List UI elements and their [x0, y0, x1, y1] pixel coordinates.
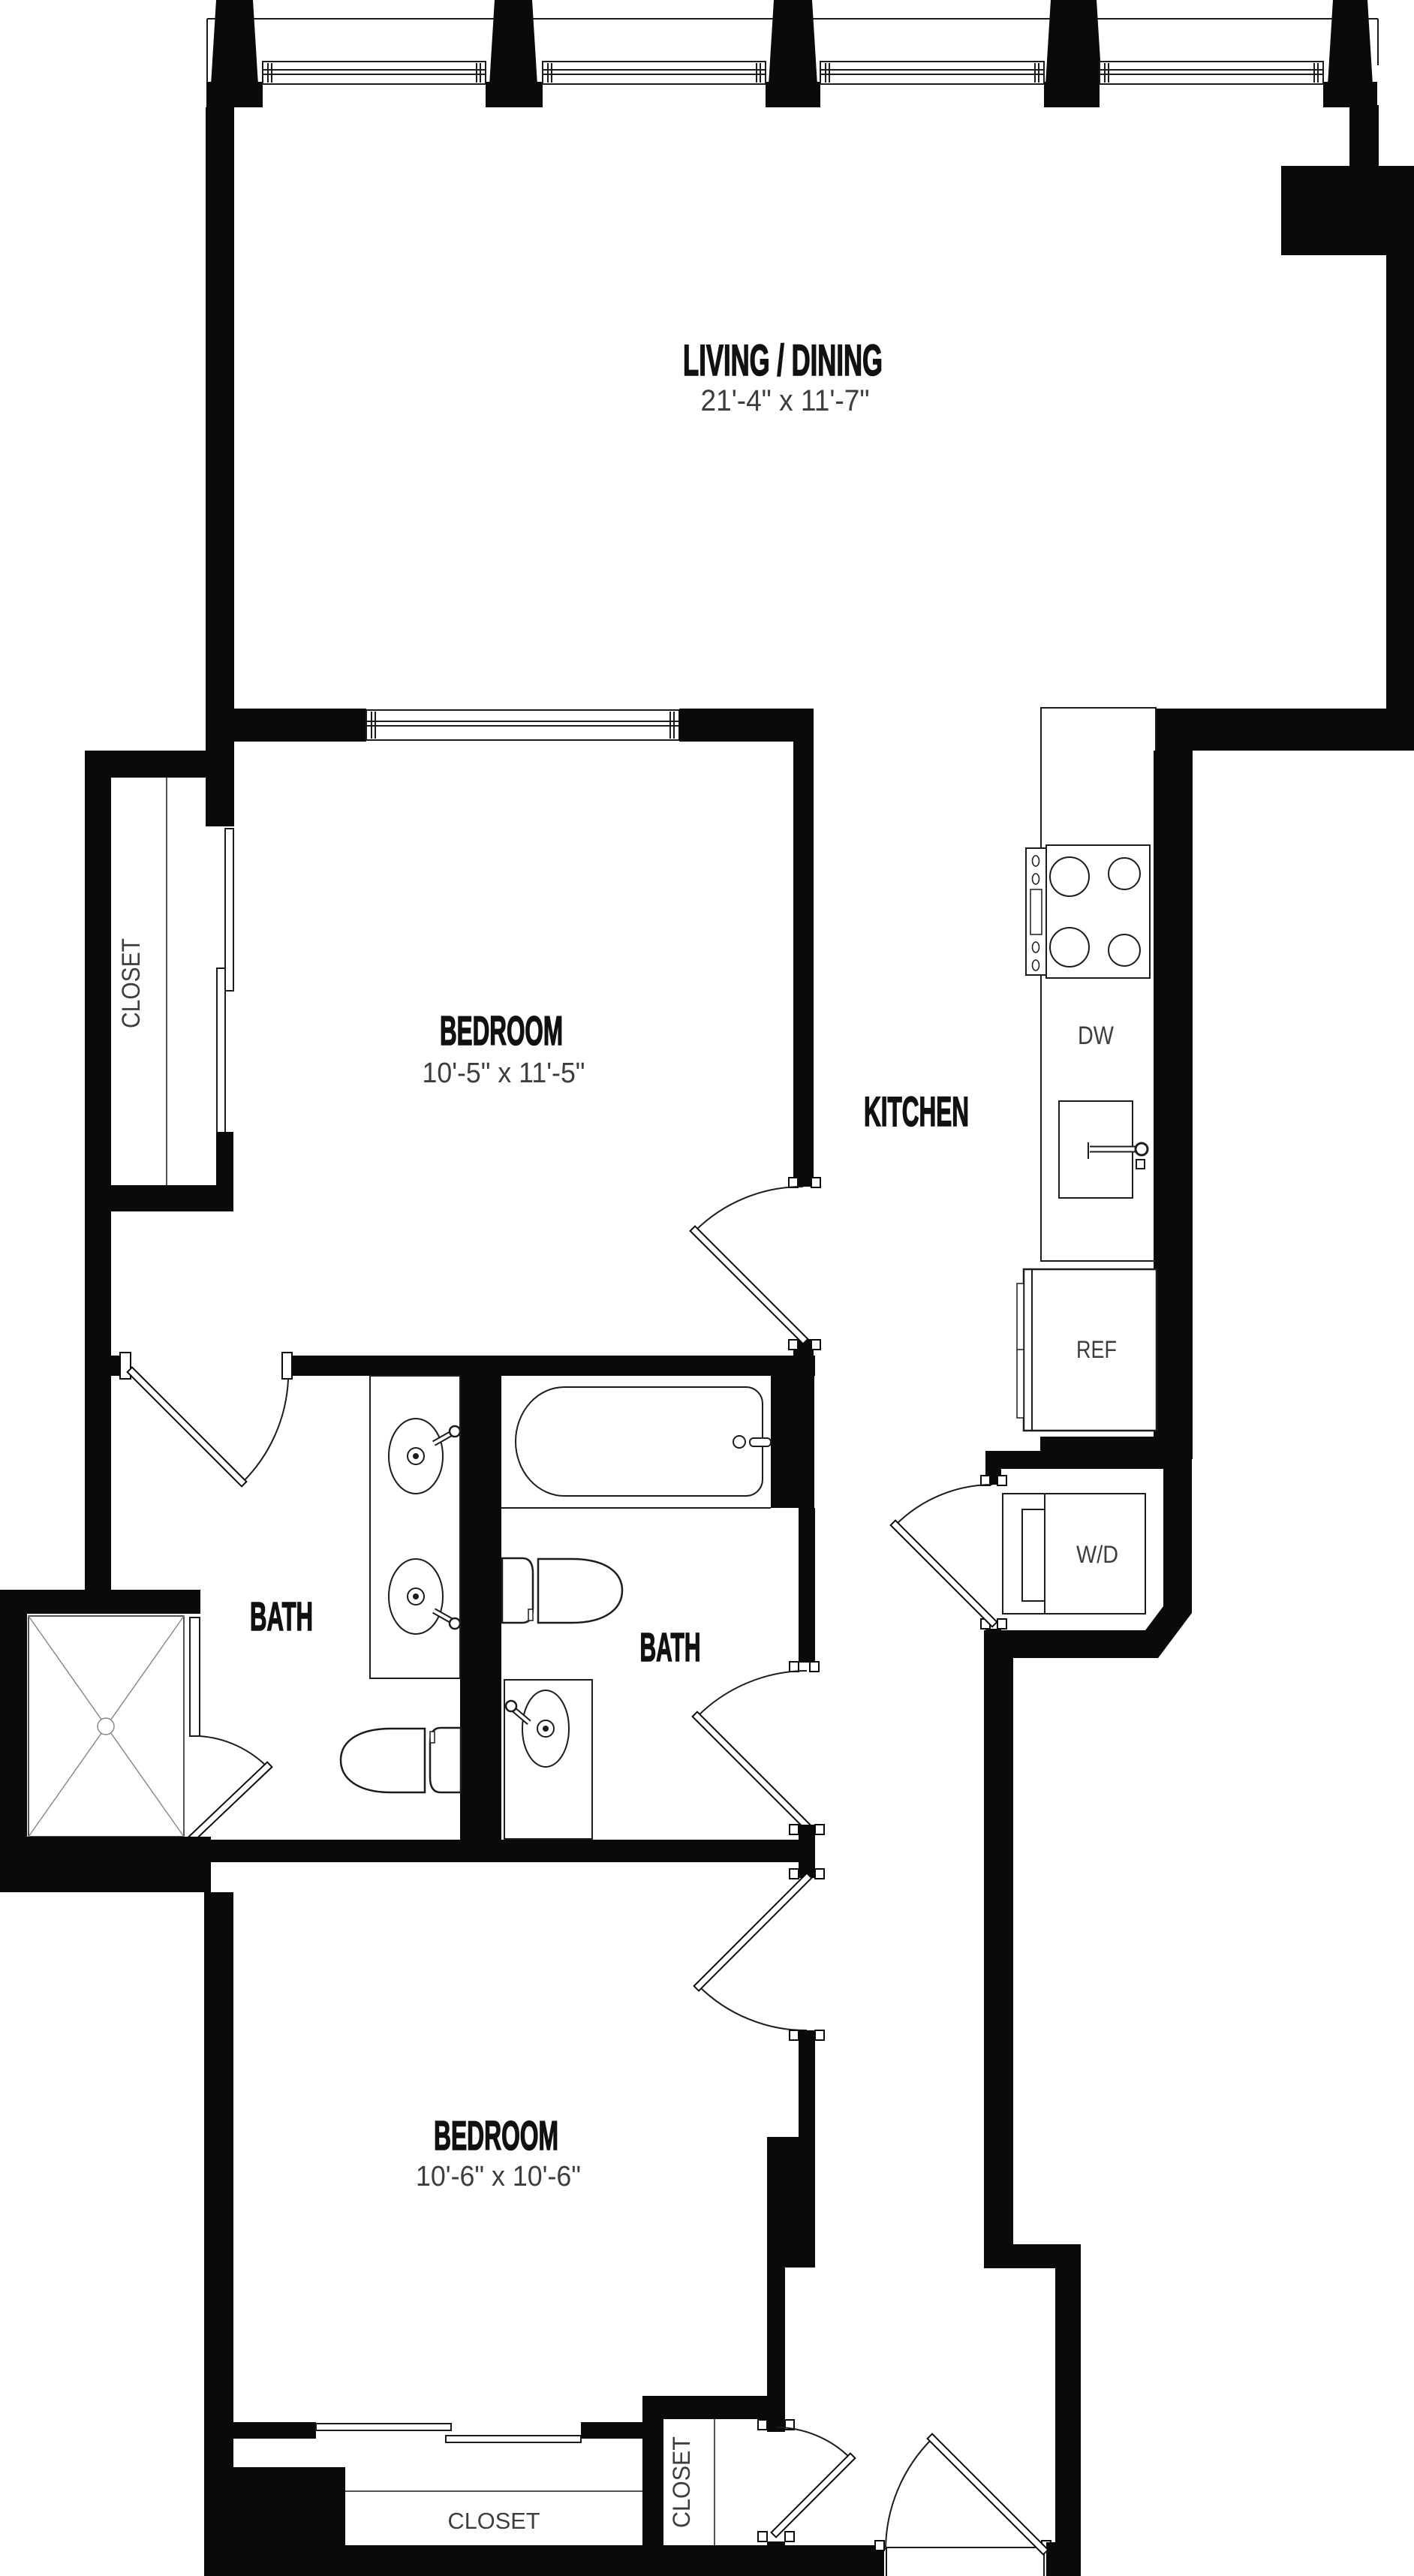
svg-text:CLOSET: CLOSET	[117, 938, 146, 1028]
svg-text:KITCHEN: KITCHEN	[864, 1088, 969, 1135]
svg-text:21'-4" x 11'-7": 21'-4" x 11'-7"	[701, 384, 870, 417]
svg-text:BEDROOM: BEDROOM	[440, 1007, 563, 1054]
svg-text:DW: DW	[1078, 1022, 1114, 1050]
svg-text:10'-5" x 11'-5": 10'-5" x 11'-5"	[423, 1058, 585, 1089]
svg-text:REF: REF	[1076, 1336, 1117, 1363]
svg-text:W/D: W/D	[1076, 1541, 1118, 1568]
svg-text:BATH: BATH	[250, 1594, 313, 1639]
svg-text:BEDROOM: BEDROOM	[434, 2112, 558, 2159]
svg-text:LIVING / DINING: LIVING / DINING	[683, 336, 883, 385]
svg-text:CLOSET: CLOSET	[448, 2508, 540, 2534]
svg-text:BATH: BATH	[640, 1625, 701, 1670]
svg-text:CLOSET: CLOSET	[668, 2436, 695, 2528]
svg-text:10'-6" x 10'-6": 10'-6" x 10'-6"	[416, 2161, 581, 2192]
